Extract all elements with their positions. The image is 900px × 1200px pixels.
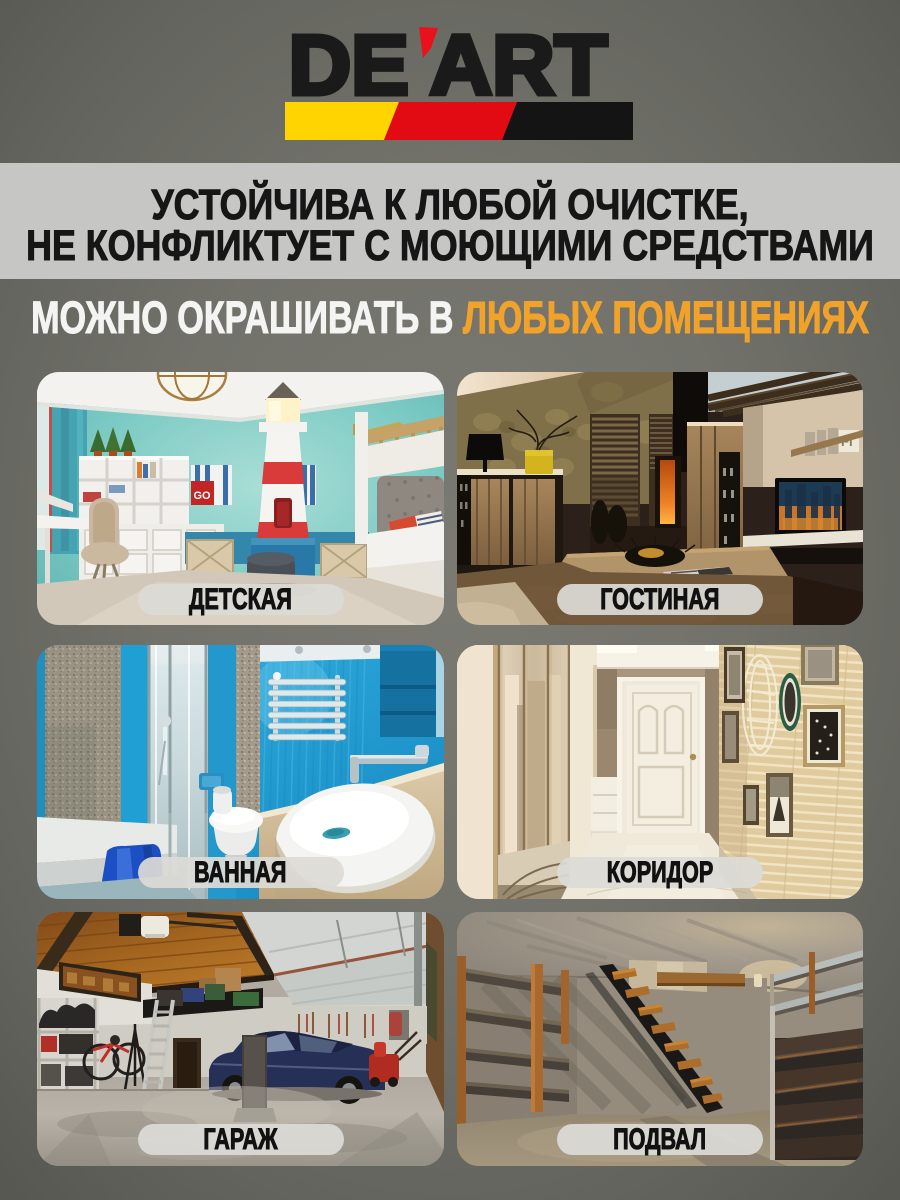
svg-text:DE ART: DE ART: [289, 19, 608, 113]
svg-text:GO: GO: [193, 490, 211, 502]
